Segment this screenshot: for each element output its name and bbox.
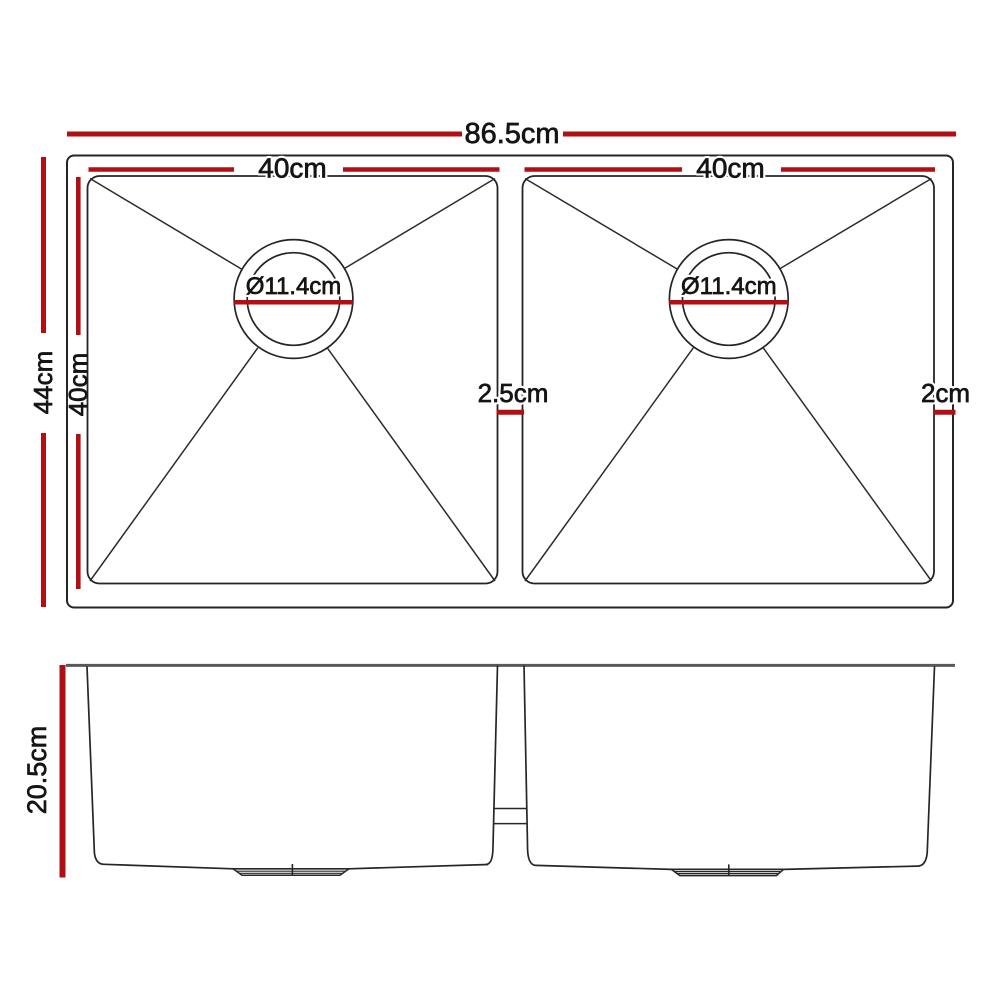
svg-text:40cm: 40cm [696,153,764,184]
svg-text:40cm: 40cm [258,153,326,184]
svg-text:Ø11.4cm: Ø11.4cm [681,273,777,300]
svg-text:44cm: 44cm [28,351,58,415]
svg-text:2.5cm: 2.5cm [478,378,549,408]
svg-text:20.5cm: 20.5cm [22,726,52,815]
svg-text:40cm: 40cm [63,353,93,417]
svg-text:86.5cm: 86.5cm [464,118,559,150]
svg-text:2cm: 2cm [921,378,970,408]
svg-text:Ø11.4cm: Ø11.4cm [246,273,342,300]
